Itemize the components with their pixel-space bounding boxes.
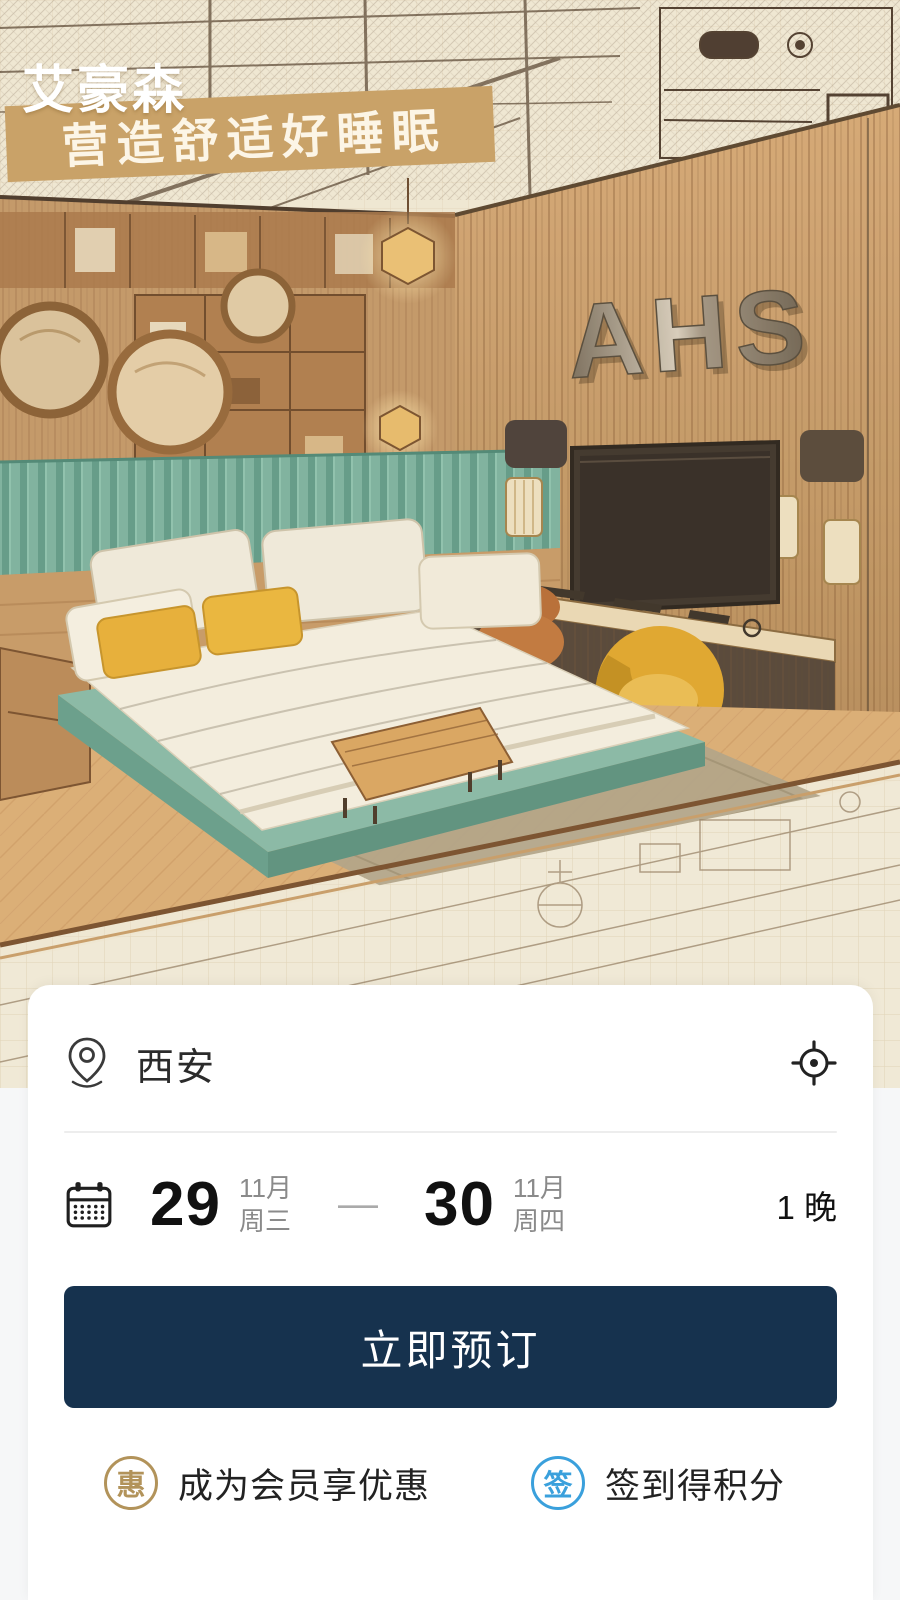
member-benefit-label: 成为会员享优惠 xyxy=(178,1458,430,1509)
checkout-month-weekday: 11月 周四 xyxy=(513,1172,566,1237)
date-range-separator: — xyxy=(338,1182,378,1227)
checkin-month-weekday: 11月 周三 xyxy=(239,1172,292,1237)
checkout-day[interactable]: 30 xyxy=(424,1169,495,1240)
app-screen: AHS AHS xyxy=(0,0,900,1600)
member-benefit-icon: 惠 xyxy=(104,1456,158,1510)
book-now-button[interactable]: 立即预订 xyxy=(64,1286,837,1408)
nights-count: 1 晚 xyxy=(776,1181,837,1229)
perks-row: 惠 成为会员享优惠 签 签到得积分 xyxy=(64,1456,837,1510)
booking-card: 西安 29 11月 周三 xyxy=(28,985,873,1600)
date-range-picker[interactable]: 29 11月 周三 — 30 11月 周四 1 晚 xyxy=(64,1169,837,1240)
hero-banner: AHS AHS xyxy=(0,0,900,1088)
checkin-day[interactable]: 29 xyxy=(150,1169,221,1240)
brand-logo: 艾豪森 xyxy=(22,48,187,123)
location-row[interactable]: 西安 xyxy=(64,1035,837,1091)
location-pin-icon xyxy=(64,1035,110,1091)
checkin-points-icon: 签 xyxy=(531,1456,585,1510)
calendar-icon xyxy=(64,1180,114,1230)
city-value[interactable]: 西安 xyxy=(136,1036,765,1091)
member-benefit-link[interactable]: 惠 成为会员享优惠 xyxy=(104,1456,430,1510)
divider xyxy=(64,1131,837,1133)
checkin-points-link[interactable]: 签 签到得积分 xyxy=(531,1456,785,1510)
locate-icon[interactable] xyxy=(791,1040,837,1086)
checkin-points-label: 签到得积分 xyxy=(605,1458,785,1509)
